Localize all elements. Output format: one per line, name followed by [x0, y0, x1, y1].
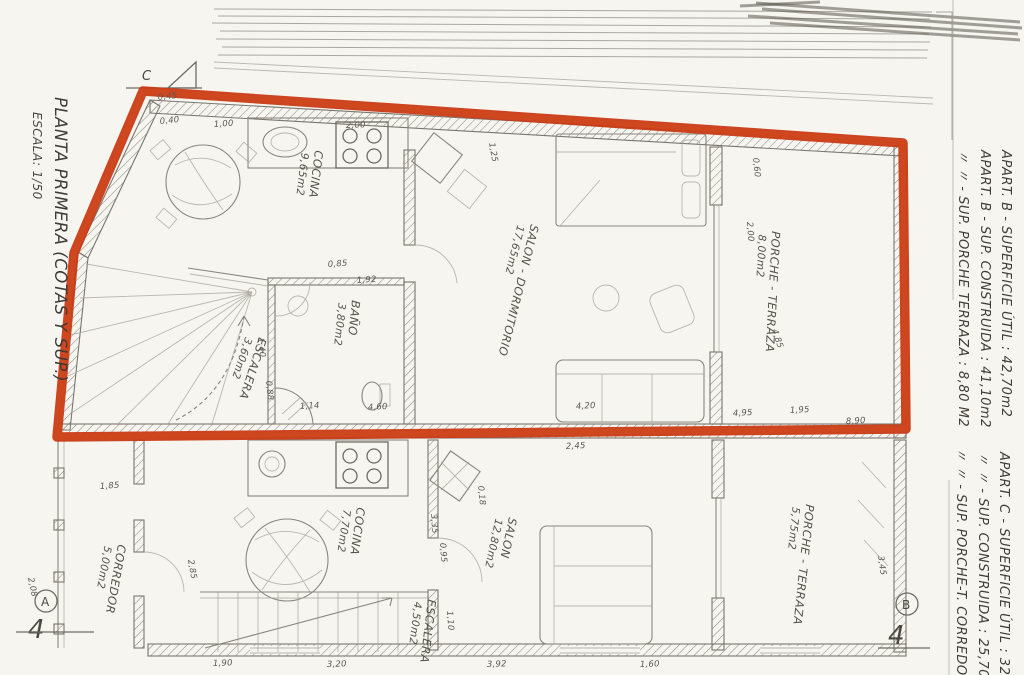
section-letter-top: C [142, 69, 152, 84]
section-marker-bottom-right: B 4 [878, 593, 930, 651]
dimension-label: 0,88 [263, 380, 275, 401]
section-marker-top: C [126, 62, 202, 88]
room-labels: COCINA9,65m2SALON - DORMITORIO17,65m2BAÑ… [90, 148, 817, 664]
dimension-label: 1,00 [214, 119, 234, 130]
stairs-icon [66, 264, 256, 424]
sink-icon [259, 451, 285, 477]
dimension-label: 2,45 [566, 441, 586, 452]
dimension-label: 3,45 [875, 555, 888, 576]
plan-title: PLANTA PRIMERA (COTAS Y SUP.) [51, 97, 70, 382]
section-letter-a: A [41, 595, 50, 609]
stairs-icon [200, 592, 428, 652]
room-label: SALON - DORMITORIO17,65m2 [483, 220, 542, 358]
title-block: PLANTA PRIMERA (COTAS Y SUP.) ESCALA: 1/… [30, 97, 70, 382]
dimension-label: 1,95 [790, 405, 810, 416]
bed-icon [556, 134, 706, 226]
dimension-label: 1,60 [640, 659, 660, 670]
dimension-label: 2,00 [346, 120, 366, 131]
washbasin-icon [288, 296, 308, 316]
dimension-label: 3,35 [428, 514, 439, 534]
floor-plan-drawing: C [0, 0, 1024, 675]
cut-number-left: 4 [28, 615, 45, 645]
legend-apartment-b: APART. B - SUPERFICIE ÚTIL : 42,70m2 APA… [955, 149, 1014, 428]
room-label: BAÑO3,80m2 [331, 298, 364, 348]
dimension-label: 1,90 [213, 658, 233, 669]
sofa-icon [540, 526, 652, 644]
apartment-c-sup-construida: 〃 〃 - SUP. CONSTRUIDA : 25,70m2 [975, 452, 990, 675]
apartment-b-sup-construida: APART. B - SUP. CONSTRUIDA : 41,10m2 [977, 149, 992, 428]
apartment-c-superficie-util: APART. C - SUPERFICIE ÚTIL : 32,75m2 [996, 451, 1012, 675]
cut-number-right: 4 [888, 621, 905, 651]
stove-icon [336, 442, 388, 488]
dimension-label: 2,00 [744, 222, 755, 242]
sofa-icon [556, 360, 704, 422]
apartment-b-superficie-util: APART. B - SUPERFICIE ÚTIL : 42,70m2 [998, 149, 1014, 417]
room-label: SALON12,80m2 [482, 514, 520, 573]
room-label: COCINA9,65m2 [293, 148, 326, 199]
dimension-label: 1,14 [300, 401, 320, 412]
scanned-floor-plan-sheet: C [0, 0, 1024, 675]
dimension-label: 1,10 [444, 611, 455, 631]
dimension-label: 0,45 [157, 91, 178, 103]
dimension-label: 1,40 [255, 337, 267, 358]
dimension-label: 0,95 [437, 543, 448, 563]
apartment-b-furniture [66, 118, 706, 424]
dimension-label: 4,95 [733, 408, 753, 419]
plan-scale: ESCALA: 1/50 [30, 112, 44, 200]
section-letter-b: B [902, 598, 911, 612]
dimension-label: 1,92 [357, 275, 377, 286]
apartment-b-sup-porche-terraza: 〃 〃 - SUP. PORCHE TERRAZA : 8,80 M2 [955, 150, 970, 427]
room-label: COCINA7,70m2 [334, 505, 367, 556]
dimension-label: 3,20 [327, 659, 347, 670]
dimension-label: 4,60 [368, 402, 388, 413]
dimension-label: 8,90 [846, 416, 866, 427]
dimension-label: 3,92 [487, 659, 507, 670]
dimension-label: 0,18 [475, 485, 487, 506]
room-area: 3,80m2 [331, 302, 347, 346]
dimension-label: 2,85 [185, 559, 198, 580]
dimension-label: 0,85 [328, 259, 348, 270]
room-label: PORCHE - TERRAZA5,75m2 [777, 502, 817, 625]
legend-apartment-c: APART. C - SUPERFICIE ÚTIL : 32,75m2 〃 〃… [953, 448, 1012, 675]
dimension-labels: 0,450,401,002,001,250,602,004,854,951,95… [25, 91, 888, 670]
dimension-label: 1,25 [486, 142, 499, 163]
dimension-label: 0,60 [750, 157, 762, 178]
round-table-icon [166, 145, 240, 219]
room-label: CORREDOR5,00m2 [90, 541, 129, 615]
section-marker-bottom-left: A 4 [16, 590, 94, 645]
apartment-c-sup-porche-corredor: 〃 〃 - SUP. PORCHE-T. CORREDOR : 12,45m2 [953, 448, 968, 675]
dimension-label: 1,85 [100, 481, 120, 492]
dimension-label: 2,08 [25, 577, 39, 599]
dimension-label: 4,20 [576, 401, 596, 412]
dimension-label: 0,40 [159, 115, 180, 127]
